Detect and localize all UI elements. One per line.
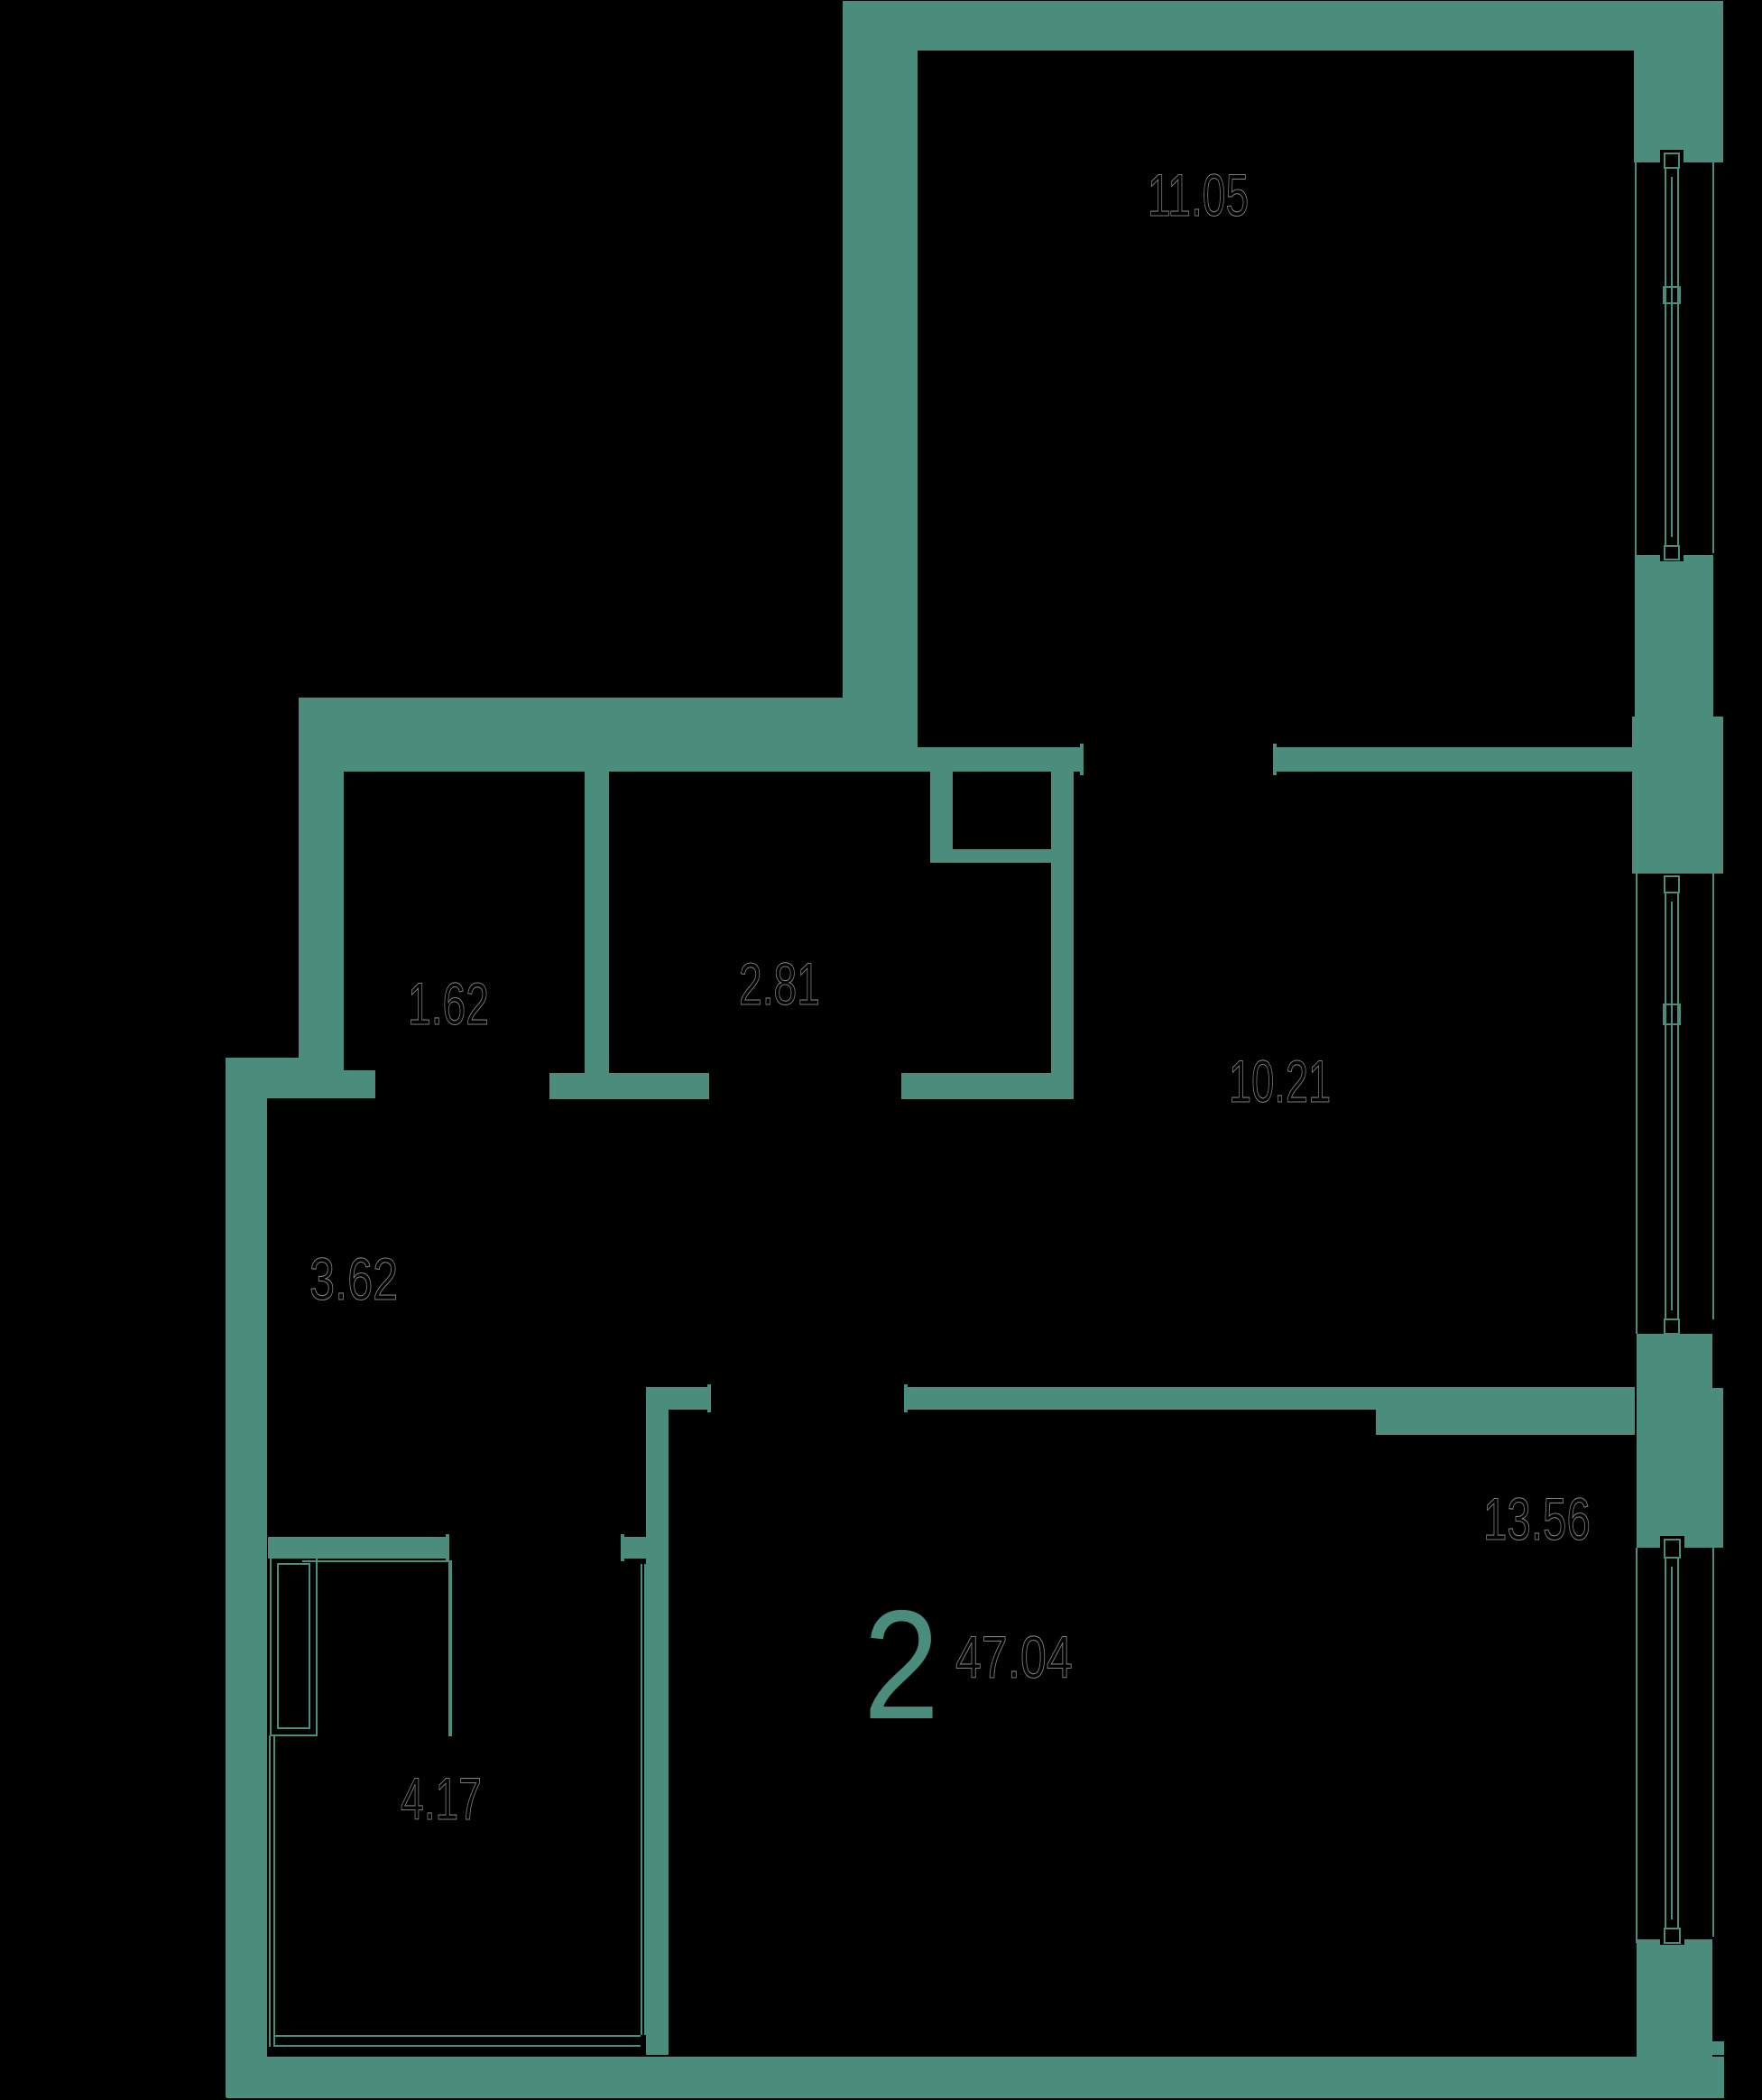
svg-text:1.62: 1.62 — [408, 971, 489, 1038]
svg-text:11.05: 11.05 — [1148, 162, 1249, 229]
svg-text:4.17: 4.17 — [401, 1766, 482, 1833]
svg-text:13.56: 13.56 — [1483, 1486, 1591, 1552]
svg-text:3.62: 3.62 — [309, 1247, 398, 1313]
svg-text:10.21: 10.21 — [1229, 1048, 1331, 1115]
svg-text:2: 2 — [863, 1578, 939, 1752]
svg-text:47.04: 47.04 — [955, 1624, 1073, 1691]
svg-text:2.81: 2.81 — [739, 951, 820, 1018]
